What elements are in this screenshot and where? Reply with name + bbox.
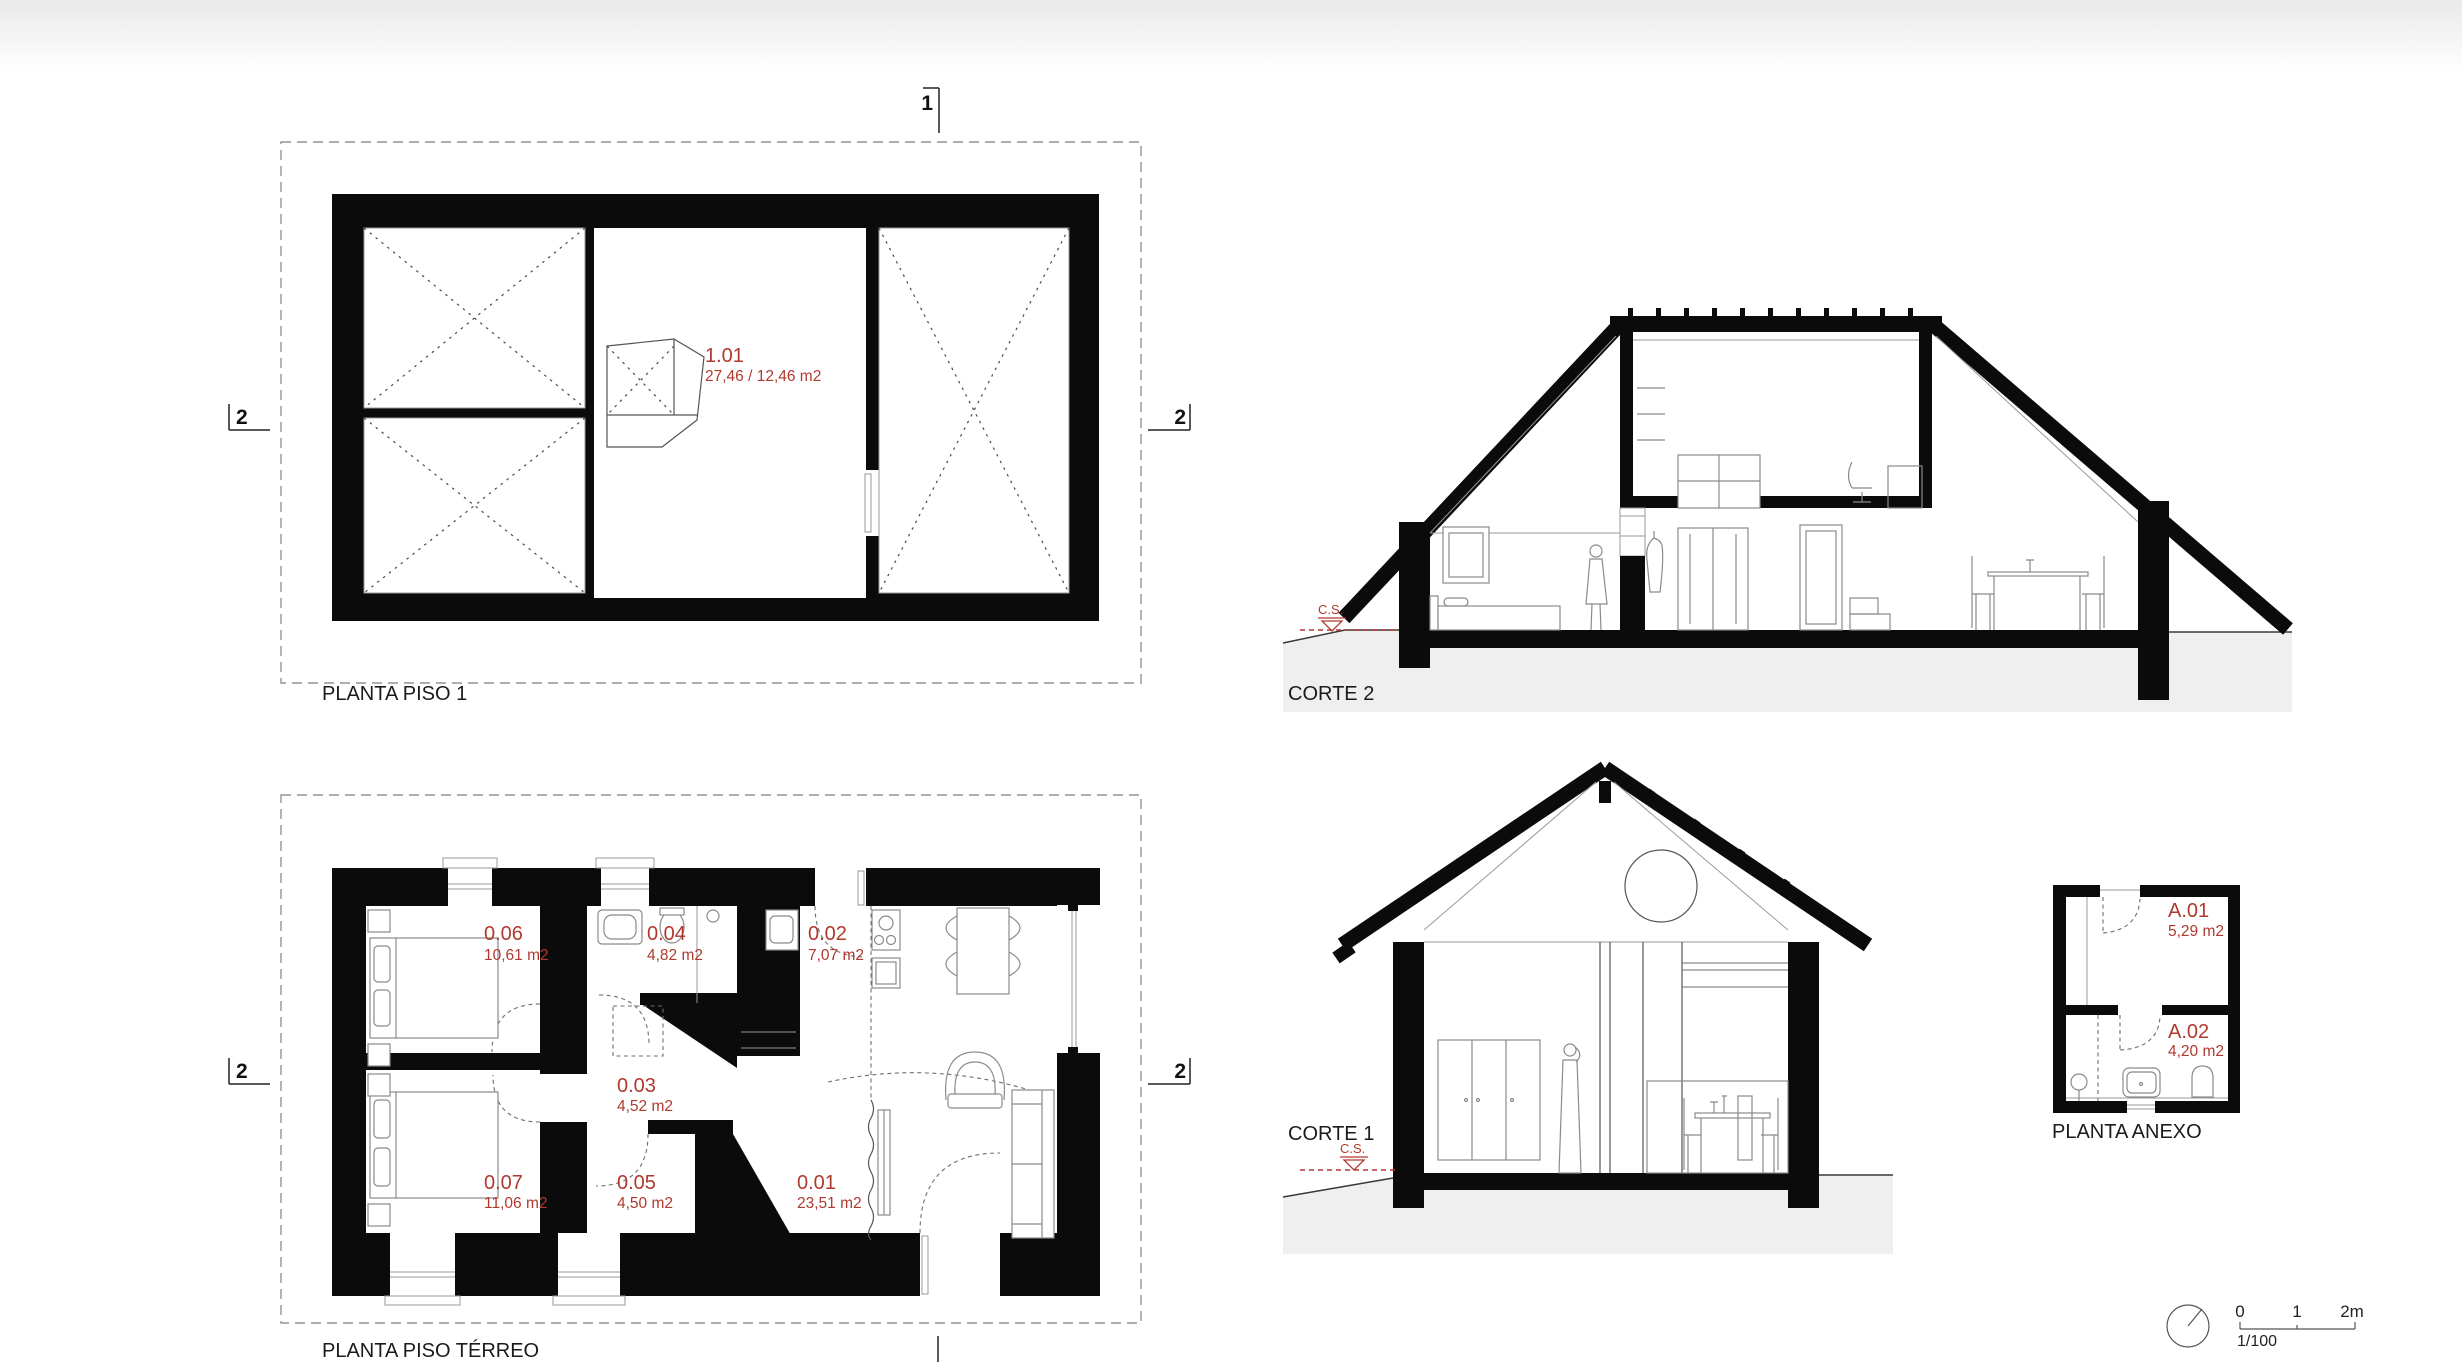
terreo-section-marker-2-left: 2 — [229, 1058, 270, 1084]
room-0-07-area: 11,06 m2 — [484, 1195, 547, 1212]
planta-anexo-drawing: A.01 5,29 m2 A.02 4,20 m2 PLANTA ANEXO — [2030, 870, 2260, 1150]
corte1-person — [1559, 1044, 1581, 1173]
section-marker-2-left-label: 2 — [236, 406, 248, 429]
room-0-04-number: 0.04 — [647, 923, 686, 945]
corte2-person — [1586, 545, 1607, 630]
scale-bar-group: 0 1 2m 1/100 — [2150, 1290, 2380, 1354]
terreo-marker-2-right-label: 2 — [1174, 1060, 1186, 1083]
room-0-03-area: 4,52 m2 — [617, 1098, 673, 1115]
piso1-stair — [607, 339, 704, 447]
section-marker-2-right: 2 — [1148, 404, 1190, 430]
terreo-section-marker-2-right: 2 — [1148, 1058, 1190, 1084]
corte1-furniture — [1438, 942, 1788, 1173]
room-a-02-number: A.02 — [2168, 1021, 2209, 1043]
corte-1-drawing: C.S. CORTE 1 — [1270, 750, 1910, 1262]
corte1-dining-set — [1684, 1096, 1778, 1173]
room-0-02-number: 0.02 — [808, 923, 847, 945]
corte2-cs-label: C.S. — [1318, 602, 1343, 617]
corte2-upper-room-furniture — [1637, 388, 1922, 508]
room-0-07-number: 0.07 — [484, 1172, 523, 1194]
corte2-dining-set — [1972, 556, 2104, 630]
room-a-01-area: 5,29 m2 — [2168, 923, 2224, 940]
section-marker-2-left: 2 — [229, 404, 270, 430]
section-marker-1-top-label: 1 — [921, 92, 933, 115]
corte2-rafter-ticks — [1628, 308, 1913, 316]
corte1-round-window — [1625, 850, 1697, 922]
room-0-02-area: 7,07 m2 — [808, 947, 864, 964]
room-1-01-number: 1.01 — [705, 345, 744, 367]
corte2-lower-furniture — [1430, 508, 2104, 630]
room-0-01-number: 0.01 — [797, 1172, 836, 1194]
piso1-title: PLANTA PISO 1 — [322, 683, 467, 705]
scale-tick-1: 1 — [2292, 1302, 2301, 1321]
scale-bar: 0 1 2m 1/100 — [2235, 1302, 2364, 1350]
corte2-structure — [1344, 308, 2288, 700]
scale-tick-2m: 2m — [2340, 1302, 2364, 1321]
anexo-room-labels: A.01 5,29 m2 A.02 4,20 m2 — [2168, 900, 2224, 1060]
terreo-title: PLANTA PISO TÉRREO — [322, 1339, 539, 1362]
scale-ratio: 1/100 — [2237, 1333, 2277, 1350]
room-0-03-number: 0.03 — [617, 1075, 656, 1097]
corte2-title: CORTE 2 — [1288, 683, 1374, 705]
corte1-level-marker: C.S. — [1300, 1141, 1396, 1170]
piso1-room-label: 1.01 27,46 / 12,46 m2 — [705, 345, 821, 385]
room-1-01-area: 27,46 / 12,46 m2 — [705, 368, 821, 385]
room-a-02-area: 4,20 m2 — [2168, 1043, 2224, 1060]
room-0-01-area: 23,51 m2 — [797, 1195, 862, 1212]
section-marker-2-right-label: 2 — [1174, 406, 1186, 429]
top-gradient-band — [0, 0, 2462, 72]
room-0-05-number: 0.05 — [617, 1172, 656, 1194]
room-a-01-number: A.01 — [2168, 900, 2209, 922]
corte-2-drawing: C.S. CORTE 2 — [1270, 290, 2310, 720]
terreo-section-line — [869, 906, 874, 1240]
room-0-04-area: 4,82 m2 — [647, 947, 703, 964]
planta-piso-1-drawing: 1 2 2 1.0 — [130, 80, 1270, 730]
room-0-06-number: 0.06 — [484, 923, 523, 945]
terreo-marker-2-left-label: 2 — [236, 1060, 248, 1083]
planta-piso-terreo-drawing: 2 2 — [130, 780, 1270, 1362]
scale-tick-0: 0 — [2235, 1302, 2244, 1321]
architectural-sheet: 1 2 2 1.0 — [0, 0, 2462, 1362]
corte1-title: CORTE 1 — [1288, 1123, 1374, 1145]
north-compass-icon — [2167, 1305, 2209, 1347]
room-0-06-area: 10,61 m2 — [484, 947, 549, 964]
room-0-05-area: 4,50 m2 — [617, 1195, 673, 1212]
section-marker-1-top: 1 — [921, 88, 939, 133]
anexo-title: PLANTA ANEXO — [2052, 1121, 2202, 1143]
